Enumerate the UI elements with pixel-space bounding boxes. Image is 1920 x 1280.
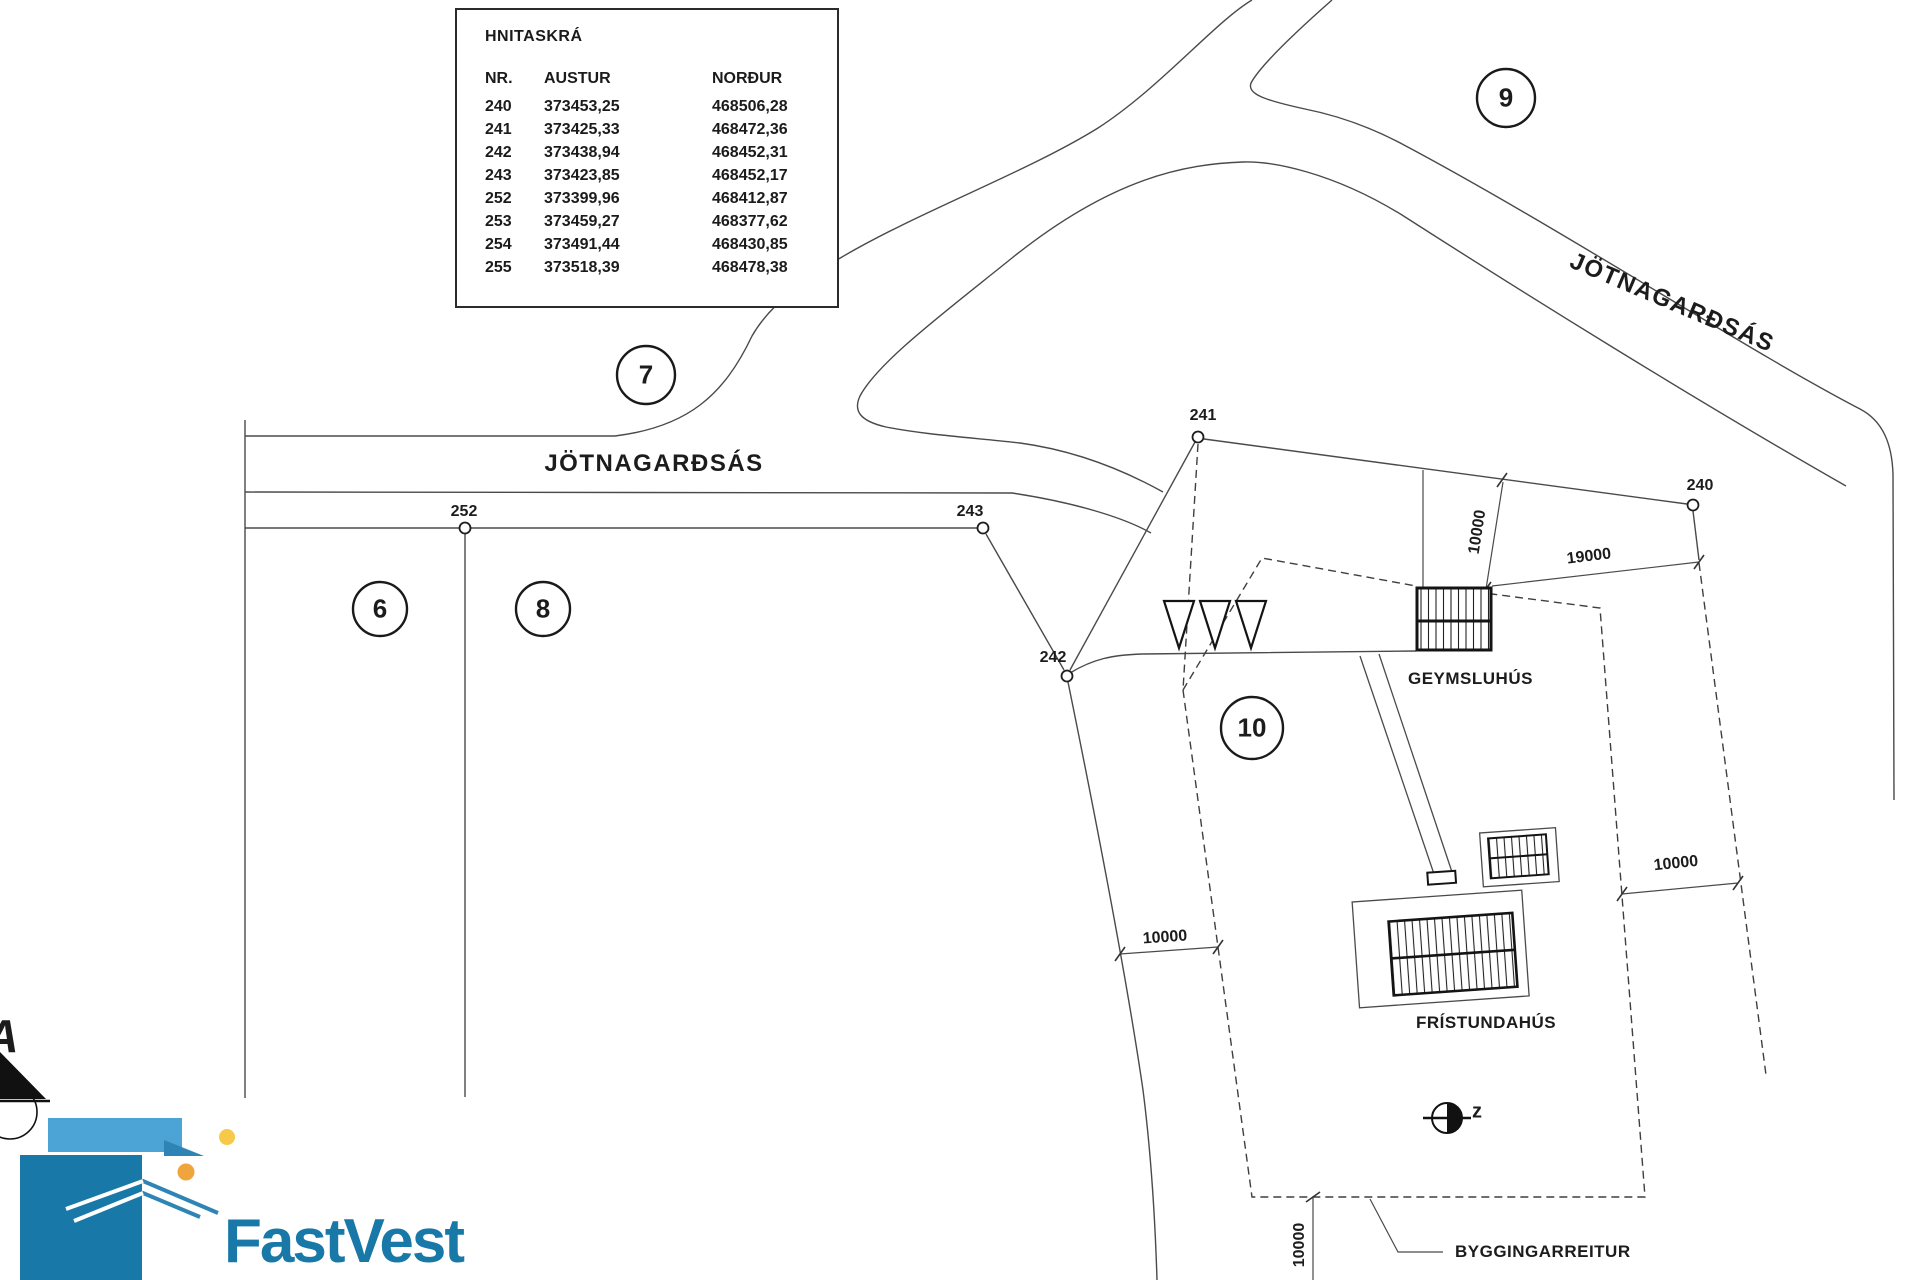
dim-10000-top	[1486, 482, 1503, 589]
coordinate-cell: 240	[485, 98, 512, 116]
cabin-label: FRÍSTUNDAHÚS	[1416, 1013, 1556, 1033]
logo-lid	[48, 1118, 182, 1152]
point-label-252: 252	[451, 503, 478, 521]
plot-number-9: 9	[1499, 83, 1513, 114]
coordinate-row: 243373423,85468452,17	[457, 167, 837, 190]
plot-number-7: 7	[639, 360, 653, 391]
logo-dot-orange	[178, 1164, 195, 1181]
coordinate-row: 241373425,33468472,36	[457, 121, 837, 144]
survey-point-240	[1688, 500, 1699, 511]
logo-lid-edge	[164, 1140, 204, 1156]
coordinate-table-title: HNITASKRÁ	[485, 28, 583, 46]
coordinate-cell: 255	[485, 259, 512, 277]
col-nr: NR.	[485, 70, 513, 88]
leader-byggingarreitur	[1370, 1199, 1443, 1252]
geymsluhus-footprint	[1417, 588, 1491, 650]
coordinate-cell: 373491,44	[544, 236, 620, 254]
shed-hatched	[1417, 588, 1491, 650]
survey-point-243	[978, 523, 989, 534]
dim-10000-left: 10000	[1142, 927, 1188, 948]
plot-number-8: 8	[536, 594, 550, 625]
coordinate-cell: 373399,96	[544, 190, 620, 208]
coordinate-cell: 468412,87	[712, 190, 788, 208]
envelope-label: BYGGINGARREITUR	[1455, 1242, 1631, 1262]
boundary-241-240	[1204, 439, 1687, 504]
coordinate-cell: 468452,17	[712, 167, 788, 185]
coordinate-table-rows: 240373453,25468506,28241373425,33468472,…	[457, 98, 837, 282]
cabin-entry	[1427, 871, 1456, 885]
point-label-243: 243	[957, 503, 984, 521]
boundary-240-stub	[1693, 511, 1699, 560]
dim-10000-right	[1622, 883, 1738, 894]
plot-number-6: 6	[373, 594, 387, 625]
triangle-symbol	[1164, 601, 1194, 648]
coordinate-cell: 373518,39	[544, 259, 620, 277]
street-label-west: JÖTNAGARÐSÁS	[544, 450, 763, 478]
coordinate-cell: 468430,85	[712, 236, 788, 254]
dim-19000	[1492, 562, 1699, 586]
point-label-240: 240	[1687, 477, 1714, 495]
coordinate-cell: 468452,31	[712, 144, 788, 162]
boundary-242-south	[1068, 682, 1157, 1280]
fastvest-logo-mark	[20, 1118, 235, 1280]
dashed-boundaries	[1183, 444, 1766, 1197]
site-plan-sheet: HNITASKRÁ NR. AUSTUR NORÐUR 240373453,25…	[0, 0, 1920, 1280]
coordinate-cell: 254	[485, 236, 512, 254]
survey-point-241	[1193, 432, 1204, 443]
coordinate-row: 252373399,96468412,87	[457, 190, 837, 213]
shed-label: GEYMSLUHÚS	[1408, 669, 1533, 689]
point-label-242: 242	[1040, 649, 1067, 667]
coordinate-cell: 373453,25	[544, 98, 620, 116]
road-edge-west-bottom	[245, 492, 1151, 533]
coordinate-cell: 242	[485, 144, 512, 162]
compass-icon	[0, 1052, 50, 1139]
col-austur: AUSTUR	[544, 70, 611, 88]
north-symbol	[1423, 1103, 1471, 1133]
col-nordur: NORÐUR	[712, 70, 782, 88]
coordinate-cell: 468478,38	[712, 259, 788, 277]
tree-symbols	[1164, 601, 1266, 648]
coordinate-row: 240373453,25468506,28	[457, 98, 837, 121]
dim-10000-left	[1120, 947, 1218, 954]
logo-dot-yellow	[219, 1129, 235, 1145]
coordinate-cell: 468506,28	[712, 98, 788, 116]
coordinate-cell: 243	[485, 167, 512, 185]
north-letter: z	[1472, 1101, 1482, 1124]
coordinate-cell: 252	[485, 190, 512, 208]
dimension-ticks	[1115, 473, 1743, 1202]
coordinate-row: 255373518,39468478,38	[457, 259, 837, 282]
fristundahus-footprint	[1348, 828, 1567, 1008]
coordinate-cell: 373459,27	[544, 213, 620, 231]
coordinate-row: 254373491,44468430,85	[457, 236, 837, 259]
coordinate-cell: 468472,36	[712, 121, 788, 139]
survey-point-242	[1062, 671, 1073, 682]
coordinate-cell: 468377,62	[712, 213, 788, 231]
fastvest-wordmark: FastVest	[224, 1206, 463, 1277]
plot-number-10: 10	[1238, 713, 1267, 744]
boundary-240-south-dashed	[1699, 563, 1766, 1075]
road-edge-north-east	[1250, 0, 1894, 800]
coordinate-cell: 373425,33	[544, 121, 620, 139]
coordinate-cell: 373423,85	[544, 167, 620, 185]
coordinate-cell: 241	[485, 121, 512, 139]
coordinate-row: 242373438,94468452,31	[457, 144, 837, 167]
point-label-241: 241	[1190, 407, 1217, 425]
dim-10000-bottom: 10000	[1291, 1223, 1309, 1268]
coordinate-table: HNITASKRÁ NR. AUSTUR NORÐUR 240373453,25…	[455, 8, 839, 308]
survey-point-252	[460, 523, 471, 534]
compass-letter: A	[0, 1009, 19, 1063]
coordinate-cell: 253	[485, 213, 512, 231]
plan-linework	[0, 0, 1920, 1280]
coordinate-cell: 373438,94	[544, 144, 620, 162]
triangle-symbol	[1236, 601, 1266, 648]
coordinate-row: 253373459,27468377,62	[457, 213, 837, 236]
triangle-symbol	[1200, 601, 1230, 648]
